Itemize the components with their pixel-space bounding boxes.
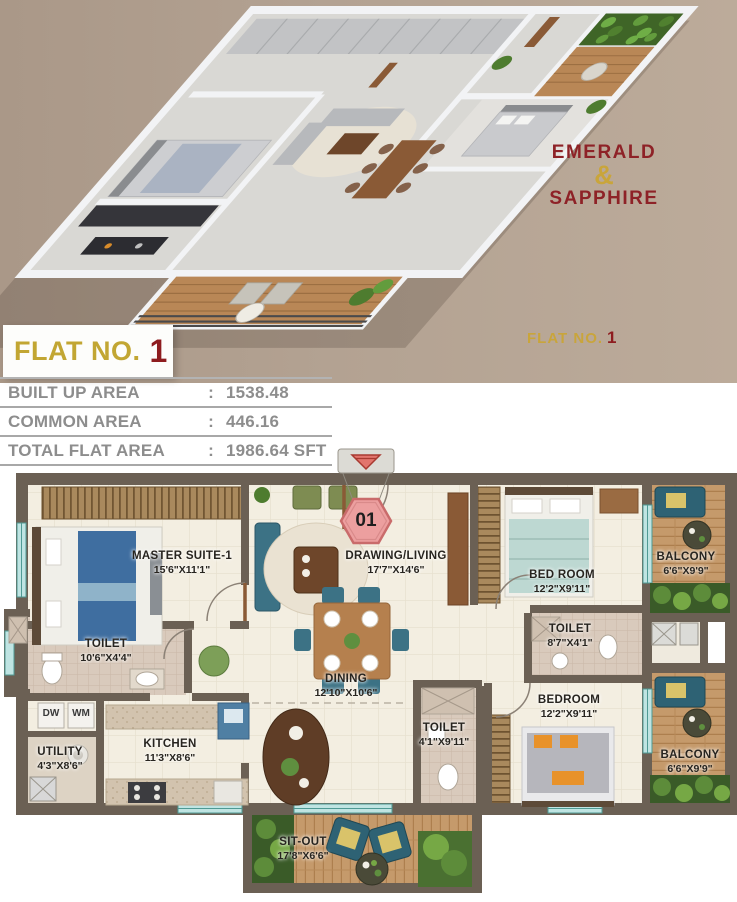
brand-ampersand-icon: & [543, 163, 665, 189]
area-row-colon: : [204, 412, 218, 432]
area-row-colon: : [204, 441, 218, 461]
floor-plan-2d: 01 MASTER SUITE-1 15'6"X11'1" DRAWING/LI… [0, 465, 737, 902]
area-row-colon: : [204, 383, 218, 403]
washing-machine-label: WM [72, 708, 90, 719]
master-bed [32, 527, 162, 645]
room-label-toilet-top-right: TOILET 8'7"X4'1" [547, 622, 592, 651]
room-name: BALCONY [657, 550, 716, 565]
room-name: SIT-OUT [277, 835, 328, 850]
room-dims: 10'6"X4'4" [80, 652, 131, 666]
foyer-rug [199, 646, 229, 676]
room-label-sit-out: SIT-OUT 17'8"X6'6" [277, 835, 328, 864]
room-label-utility: UTILITY 4'3"X8'6" [37, 745, 83, 774]
area-row-label: TOTAL FLAT AREA [0, 441, 204, 461]
area-summary-table: BUILT UP AREA : 1538.48 COMMON AREA : 44… [0, 377, 332, 466]
area-row-value: 1538.48 [218, 383, 289, 403]
room-dims: 15'6"X11'1" [132, 564, 232, 578]
room-name: KITCHEN [143, 737, 196, 752]
service-shaft [652, 623, 698, 645]
room-dims: 6'6"X9'9" [657, 565, 716, 579]
balcony-deck [130, 274, 408, 327]
room-name: UTILITY [37, 745, 83, 760]
bedroom-br-bed [522, 727, 614, 807]
room-dims: 4'1"X9'11" [419, 736, 470, 750]
room-label-bed-room-top: BED ROOM 12'2"X9'11" [529, 568, 595, 597]
room-dims: 6'6"X9'9" [661, 763, 720, 777]
flat-number-watermark-number: 1 [607, 328, 616, 347]
room-name: DINING [315, 672, 378, 687]
area-row-label: COMMON AREA [0, 412, 204, 432]
room-dims: 12'2"X9'11" [538, 708, 600, 722]
room-dims: 8'7"X4'1" [547, 637, 592, 651]
area-row-label: BUILT UP AREA [0, 383, 204, 403]
room-label-master-suite: MASTER SUITE-1 15'6"X11'1" [132, 549, 232, 578]
flat-number-watermark-prefix: FLAT NO. [527, 330, 603, 347]
room-label-toilet-left: TOILET 10'6"X4'4" [80, 637, 131, 666]
room-label-balcony-top: BALCONY 6'6"X9'9" [657, 550, 716, 579]
room-name: BEDROOM [538, 693, 600, 708]
flat-number-watermark: FLAT NO.1 [527, 328, 617, 348]
area-row-built-up: BUILT UP AREA : 1538.48 [0, 379, 332, 408]
flat-brochure-page: EMERALD & SAPPHIRE FLAT NO.1 FLAT NO. 1 … [0, 0, 737, 902]
room-dims: 12'2"X9'11" [529, 583, 595, 597]
flat-banner-number: 1 [149, 333, 167, 370]
room-dims: 17'7"X14'6" [345, 564, 446, 578]
area-row-common: COMMON AREA : 446.16 [0, 408, 332, 437]
room-dims: 11'3"X8'6" [143, 752, 196, 766]
room-name: MASTER SUITE-1 [132, 549, 232, 564]
room-name: DRAWING/LIVING [345, 549, 446, 564]
room-name: BALCONY [661, 748, 720, 763]
crockery-unit [263, 709, 329, 805]
room-label-kitchen: KITCHEN 11'3"X8'6" [143, 737, 196, 766]
area-row-value: 1986.64 SFT [218, 441, 326, 461]
area-row-total: TOTAL FLAT AREA : 1986.64 SFT [0, 437, 332, 466]
room-dims: 12'10"X10'6" [315, 687, 378, 701]
room-label-balcony-bottom: BALCONY 6'6"X9'9" [661, 748, 720, 777]
room-dims: 17'8"X6'6" [277, 850, 328, 864]
unit-number-badge: 01 [355, 510, 376, 532]
room-label-drawing-living: DRAWING/LIVING 17'7"X14'6" [345, 549, 446, 578]
project-brand: EMERALD & SAPPHIRE [543, 143, 665, 209]
flat-number-banner: FLAT NO. 1 [3, 325, 173, 377]
room-label-dining: DINING 12'10"X10'6" [315, 672, 378, 701]
room-name: TOILET [419, 721, 470, 736]
room-name: BED ROOM [529, 568, 595, 583]
room-dims: 4'3"X8'6" [37, 760, 83, 774]
room-label-bedroom-bottom: BEDROOM 12'2"X9'11" [538, 693, 600, 722]
brand-name-line2: SAPPHIRE [543, 189, 665, 209]
room-label-toilet-center: TOILET 4'1"X9'11" [419, 721, 470, 750]
dishwasher-label: DW [43, 708, 60, 719]
room-name: TOILET [80, 637, 131, 652]
room-name: TOILET [547, 622, 592, 637]
flat-banner-prefix: FLAT NO. [14, 336, 140, 367]
area-row-value: 446.16 [218, 412, 279, 432]
